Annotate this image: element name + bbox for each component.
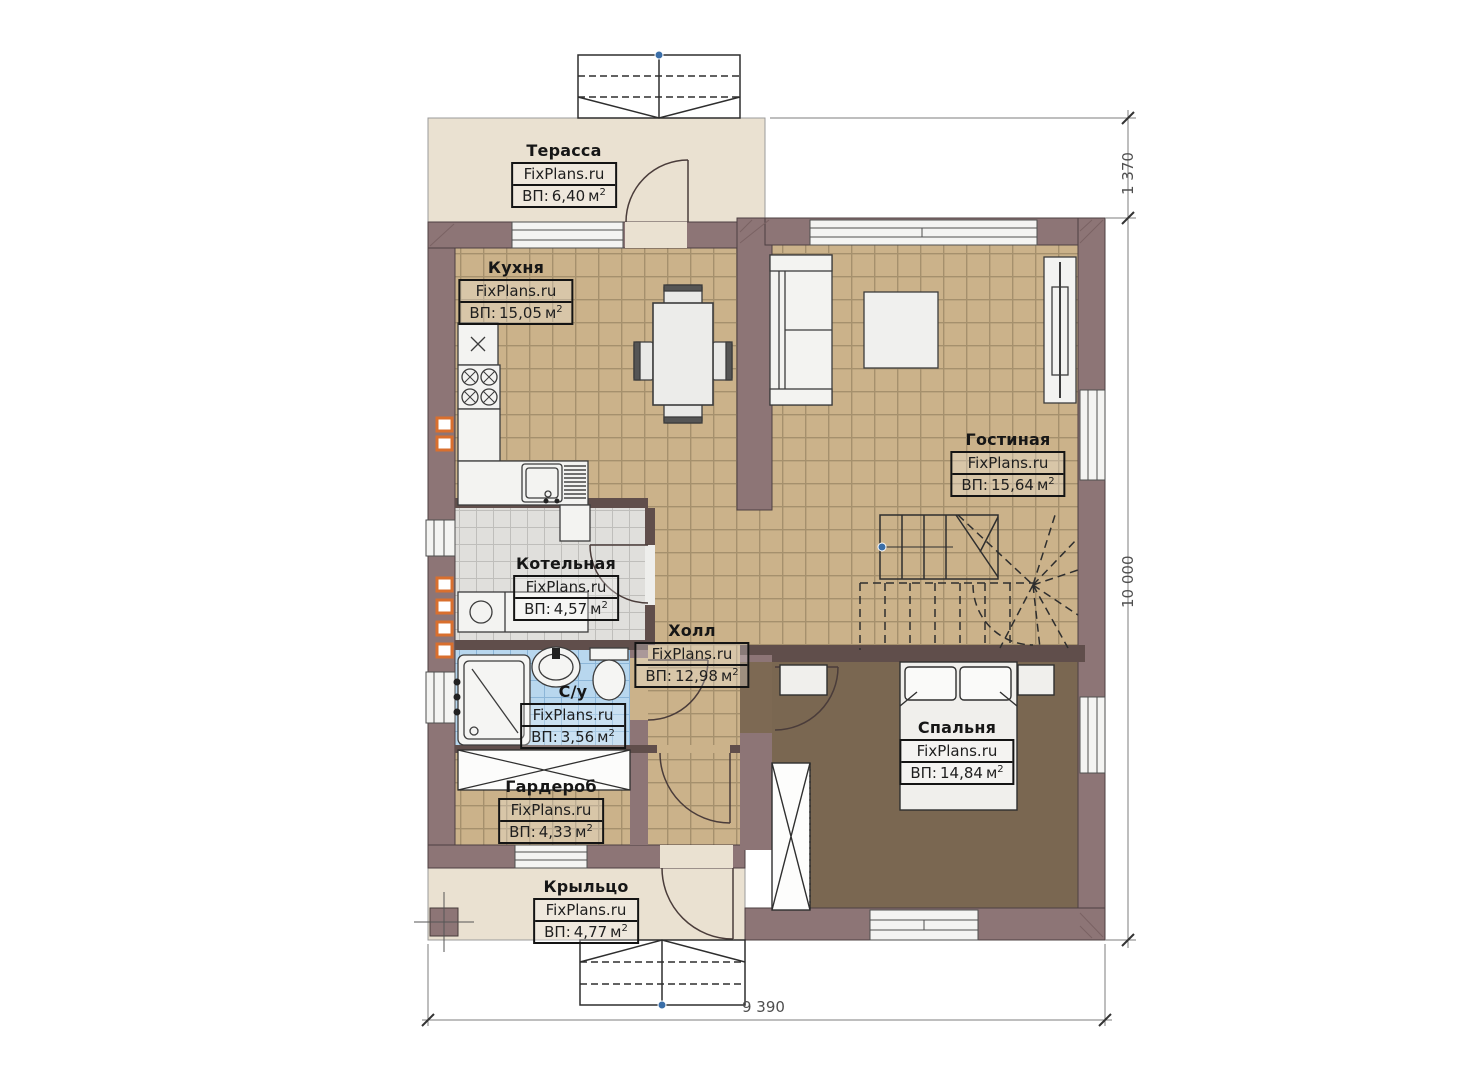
dimension-house-width: 9 390 <box>742 998 785 1016</box>
room-name: Холл <box>668 621 716 640</box>
sofa <box>770 255 832 405</box>
room-label-wardrobe: Гардероб FixPlans.ru ВП:4,33м2 <box>498 777 604 844</box>
room-area: ВП:15,64м2 <box>952 473 1063 495</box>
watermark: FixPlans.ru <box>515 577 617 597</box>
room-info-box: FixPlans.ru ВП:4,57м2 <box>513 575 619 621</box>
kitchen-counter <box>458 409 500 461</box>
room-name: Гардероб <box>505 777 596 796</box>
room-name: Гостиная <box>966 430 1051 449</box>
room-info-box: FixPlans.ru ВП:15,05м2 <box>458 279 573 325</box>
room-info-box: FixPlans.ru ВП:6,40м2 <box>511 162 617 208</box>
room-label-kitchen: Кухня FixPlans.ru ВП:15,05м2 <box>458 258 573 325</box>
watermark: FixPlans.ru <box>901 741 1012 761</box>
bedroom-bottom-window <box>870 910 978 940</box>
tv-stand <box>1044 257 1076 403</box>
dimension-house-length: 10 000 <box>1119 556 1137 609</box>
room-name: Терасса <box>526 141 601 160</box>
entry-steps-top <box>578 51 740 118</box>
nightstand-left <box>780 665 827 695</box>
room-info-box: FixPlans.ru ВП:4,33м2 <box>498 798 604 844</box>
stove <box>458 365 500 409</box>
watermark: FixPlans.ru <box>500 800 602 820</box>
living-top-window <box>810 220 1037 245</box>
room-area: ВП:15,05м2 <box>460 301 571 323</box>
watermark: FixPlans.ru <box>460 281 571 301</box>
shower <box>454 655 531 745</box>
floor-plan-drawing <box>0 0 1473 1080</box>
room-label-bath: С/у FixPlans.ru ВП:3,56м2 <box>520 682 626 749</box>
watermark: FixPlans.ru <box>513 164 615 184</box>
watermark: FixPlans.ru <box>522 705 624 725</box>
room-area: ВП:14,84м2 <box>901 761 1012 783</box>
washbasin <box>532 647 580 687</box>
watermark: FixPlans.ru <box>535 900 637 920</box>
room-info-box: FixPlans.ru ВП:15,64м2 <box>950 451 1065 497</box>
bedroom-wardrobe <box>772 763 810 910</box>
nightstand-right <box>1018 665 1054 695</box>
room-area: ВП:4,57м2 <box>515 597 617 619</box>
coffee-table <box>864 292 938 368</box>
watermark: FixPlans.ru <box>636 644 747 664</box>
room-info-box: FixPlans.ru ВП:12,98м2 <box>634 642 749 688</box>
entry-steps-bottom <box>580 940 745 1009</box>
room-label-porch: Крыльцо FixPlans.ru ВП:4,77м2 <box>533 877 639 944</box>
wardrobe-bottom-window <box>515 845 587 868</box>
room-area: ВП:4,33м2 <box>500 820 602 842</box>
room-name: Крыльцо <box>543 877 628 896</box>
dimension-terrace-depth: 1 370 <box>1119 152 1137 195</box>
bedroom-right-window <box>1080 697 1105 773</box>
living-right-window <box>1080 390 1105 480</box>
boiler-left-window <box>426 520 455 556</box>
room-area: ВП:3,56м2 <box>522 725 624 747</box>
fridge <box>458 323 498 365</box>
room-label-boiler: Котельная FixPlans.ru ВП:4,57м2 <box>513 554 619 621</box>
room-label-hall: Холл FixPlans.ru ВП:12,98м2 <box>634 621 749 688</box>
room-label-living: Гостиная FixPlans.ru ВП:15,64м2 <box>950 430 1065 497</box>
room-info-box: FixPlans.ru ВП:3,56м2 <box>520 703 626 749</box>
room-info-box: FixPlans.ru ВП:4,77м2 <box>533 898 639 944</box>
room-name: Котельная <box>516 554 616 573</box>
room-area: ВП:6,40м2 <box>513 184 615 206</box>
watermark: FixPlans.ru <box>952 453 1063 473</box>
room-name: С/у <box>559 682 588 701</box>
floor-plan: Терасса FixPlans.ru ВП:6,40м2 Кухня FixP… <box>0 0 1473 1080</box>
room-label-terrace: Терасса FixPlans.ru ВП:6,40м2 <box>511 141 617 208</box>
bath-left-window <box>426 672 455 723</box>
room-name: Кухня <box>488 258 544 277</box>
room-area: ВП:12,98м2 <box>636 664 747 686</box>
room-name: Спальня <box>918 718 996 737</box>
room-area: ВП:4,77м2 <box>535 920 637 942</box>
room-info-box: FixPlans.ru ВП:14,84м2 <box>899 739 1014 785</box>
room-label-bedroom: Спальня FixPlans.ru ВП:14,84м2 <box>899 718 1014 785</box>
kitchen-window <box>512 222 623 248</box>
